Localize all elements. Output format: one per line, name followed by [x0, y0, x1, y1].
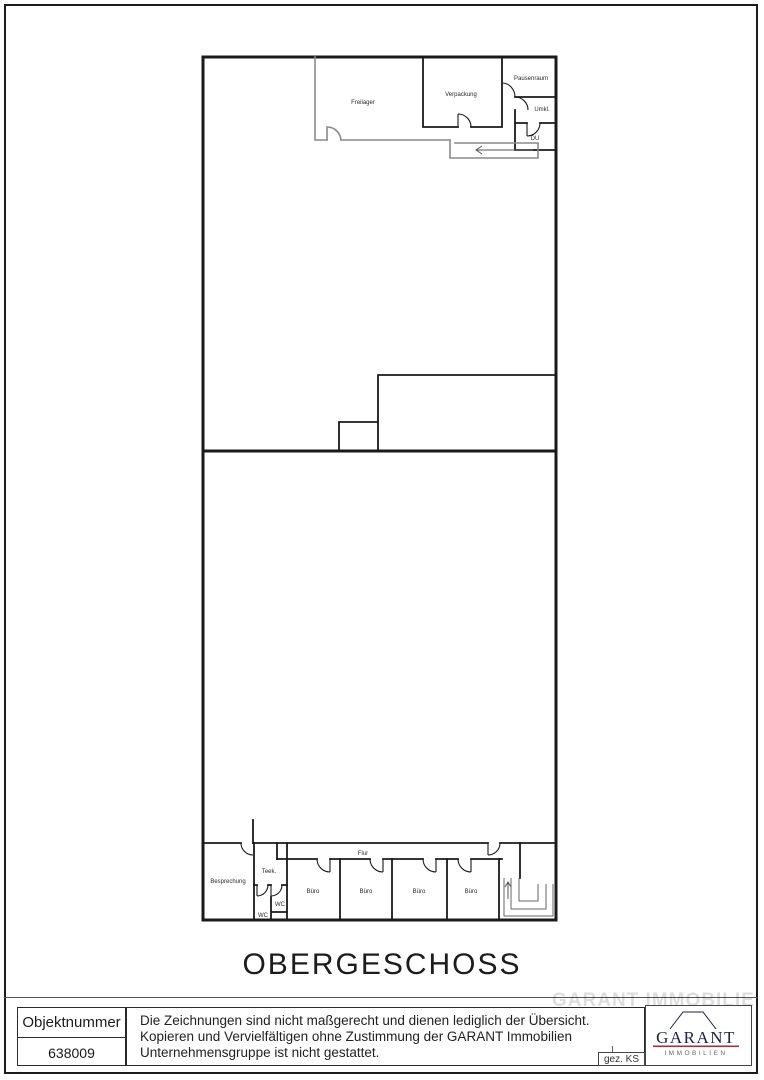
room-label-flur: Flur — [358, 851, 368, 857]
object-number-label: Objektnummer — [18, 1008, 125, 1038]
page-title: OBERGESCHOSS — [0, 948, 764, 982]
interior-walls — [203, 57, 556, 920]
room-label-wc-right: WC — [275, 902, 286, 908]
room-label-buero-4: Büro — [465, 889, 478, 895]
room-label-freilager: Freilager — [351, 100, 375, 106]
room-label-wc-left: WC — [258, 913, 269, 919]
room-label-besprechung: Besprechung — [210, 879, 245, 885]
floor-plan: Freilager Verpackung Pausenraum Umkl. DU… — [0, 0, 764, 1080]
room-label-buero-3: Büro — [413, 889, 426, 895]
door-arcs — [241, 83, 540, 896]
room-label-buero-2: Büro — [360, 889, 373, 895]
disclaimer-line-2: Kopieren und Vervielfältigen ohne Zustim… — [140, 1029, 644, 1045]
upper-stair-arrow — [476, 146, 533, 154]
room-label-du: DU — [531, 136, 540, 142]
room-label-verpackung: Verpackung — [445, 92, 477, 98]
staircase-arrow — [505, 882, 511, 899]
room-label-umkl: Umkl. — [534, 107, 550, 113]
disclaimer-box: Die Zeichnungen sind nicht maßgerecht un… — [126, 1007, 645, 1066]
outer-walls — [203, 57, 556, 920]
garant-logo-box: GARANT IMMOBILIEN — [645, 1005, 752, 1066]
logo-roof-icon — [670, 1012, 716, 1029]
logo-subtitle: IMMOBILIEN — [664, 1050, 727, 1057]
object-number-value: 638009 — [18, 1038, 125, 1067]
room-labels: Freilager Verpackung Pausenraum Umkl. DU… — [210, 76, 550, 919]
room-label-pausenraum: Pausenraum — [514, 76, 548, 82]
room-label-teek: Teek. — [262, 869, 277, 875]
drawn-by-label: gez. KS — [598, 1052, 645, 1066]
garant-logo: GARANT IMMOBILIEN — [646, 1006, 751, 1065]
logo-wordmark: GARANT — [656, 1028, 736, 1047]
staircase — [504, 878, 553, 916]
freilager-partition — [315, 57, 538, 158]
logo-rule — [653, 1046, 739, 1048]
room-label-buero-1: Büro — [307, 889, 320, 895]
disclaimer-line-1: Die Zeichnungen sind nicht maßgerecht un… — [140, 1013, 644, 1029]
disclaimer-line-3: Unternehmensgruppe ist nicht gestattet. — [140, 1045, 644, 1061]
object-number-box: Objektnummer 638009 — [17, 1007, 126, 1066]
